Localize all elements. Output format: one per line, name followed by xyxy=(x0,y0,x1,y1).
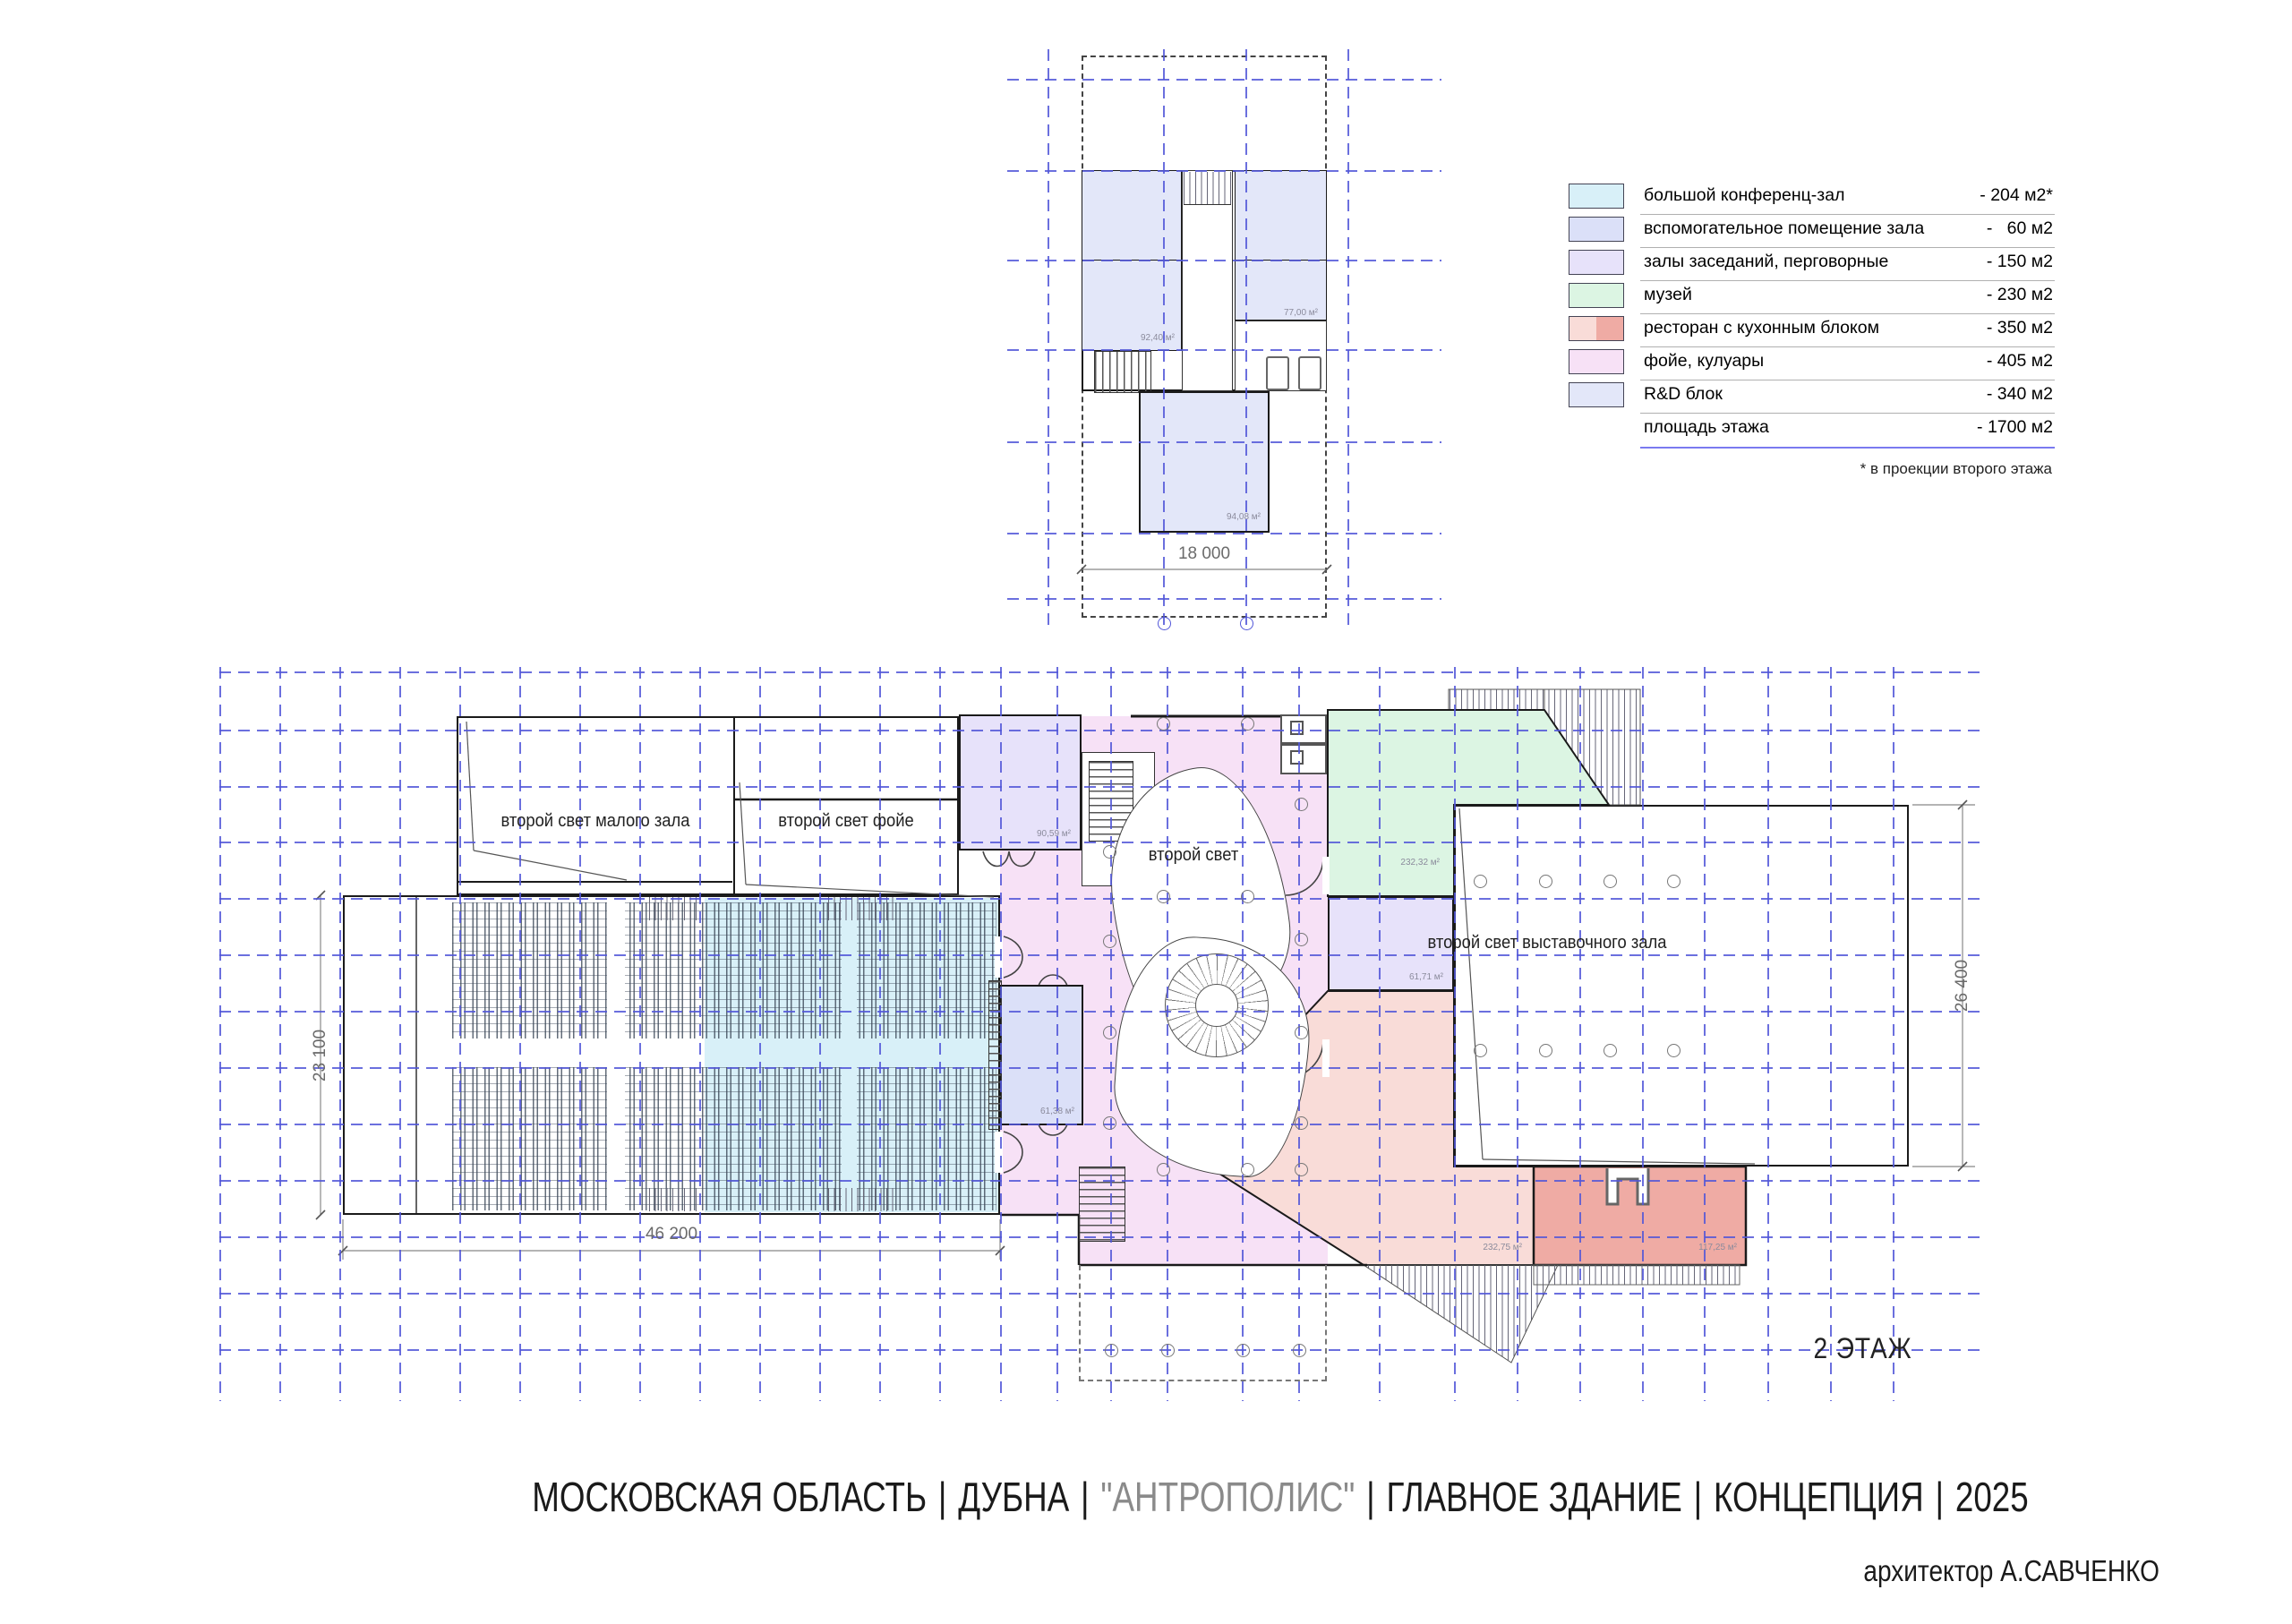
grid-line xyxy=(1007,533,1441,534)
grid-line xyxy=(219,671,1983,673)
column-marker xyxy=(1295,1026,1308,1039)
grid-line xyxy=(1007,349,1441,351)
grid-line xyxy=(1245,49,1247,627)
structural-grid xyxy=(0,0,2292,1624)
column-marker xyxy=(1474,1044,1487,1057)
grid-line xyxy=(879,667,881,1401)
grid-line xyxy=(1167,667,1168,1401)
column-marker xyxy=(1240,617,1253,630)
grid-line xyxy=(1007,79,1441,81)
grid-line xyxy=(219,898,1983,900)
grid-line xyxy=(219,1236,1983,1238)
grid-line xyxy=(219,1293,1983,1295)
exhibition-void-label: второй свет выставочного зала xyxy=(1382,933,1712,953)
column-marker xyxy=(1539,1044,1552,1057)
grid-line xyxy=(339,667,341,1401)
title-separator: | xyxy=(1081,1473,1090,1521)
column-marker xyxy=(1293,1344,1306,1357)
room-area-label: 232,75 м² xyxy=(1432,1243,1522,1252)
grid-line xyxy=(639,667,641,1401)
grid-line xyxy=(1007,441,1441,443)
grid-line xyxy=(219,667,221,1401)
grid-line xyxy=(399,667,401,1401)
dimension-label: 46 200 xyxy=(609,1225,734,1244)
title-building: ГЛАВНОЕ ЗДАНИЕ xyxy=(1387,1473,1682,1521)
room-area-label: 90,59 м² xyxy=(981,829,1071,839)
column-marker xyxy=(1157,717,1170,731)
grid-line xyxy=(519,667,521,1401)
small-hall-void-label: второй свет малого зала xyxy=(472,811,719,832)
grid-line xyxy=(1000,667,1002,1401)
column-marker xyxy=(1103,935,1116,948)
room-area-label: 77,00 м² xyxy=(1228,308,1318,318)
grid-line xyxy=(1893,667,1894,1401)
grid-line xyxy=(579,667,581,1401)
column-marker xyxy=(1241,717,1254,731)
title-separator: | xyxy=(938,1473,947,1521)
grid-line xyxy=(939,667,941,1401)
grid-line xyxy=(1242,667,1244,1401)
column-marker xyxy=(1241,890,1254,903)
dimension-label: 23 100 xyxy=(311,1002,330,1109)
architect-credit: архитектор А.САВЧЕНКО xyxy=(1863,1554,2159,1588)
grid-line xyxy=(219,1124,1983,1125)
grid-line xyxy=(1767,667,1769,1401)
grid-line xyxy=(1579,667,1581,1401)
column-marker xyxy=(1474,875,1487,888)
column-marker xyxy=(1236,1344,1250,1357)
column-marker xyxy=(1667,875,1681,888)
column-marker xyxy=(1295,798,1308,811)
grid-line xyxy=(219,954,1983,956)
column-marker xyxy=(1161,1344,1175,1357)
grid-line xyxy=(1704,667,1706,1401)
grid-line xyxy=(219,730,1983,731)
grid-line xyxy=(1056,667,1058,1401)
grid-line xyxy=(219,842,1983,843)
column-marker xyxy=(1667,1044,1681,1057)
title-separator: | xyxy=(1694,1473,1703,1521)
column-marker xyxy=(1604,1044,1617,1057)
grid-line xyxy=(219,1180,1983,1182)
grid-line xyxy=(279,667,281,1401)
grid-line xyxy=(1048,49,1049,627)
drawing-sheet: большой конференц-зал - 204 м2* вспомога… xyxy=(0,0,2292,1624)
column-marker xyxy=(1295,1163,1308,1176)
room-area-label: 61,71 м² xyxy=(1354,972,1443,982)
dimension-label: 18 000 xyxy=(1142,544,1267,564)
floor-label: 2 ЭТАЖ xyxy=(1814,1332,1912,1365)
room-area-label: 117,25 м² xyxy=(1647,1243,1737,1252)
dimension-label: 26 400 xyxy=(1953,932,1972,1039)
title-separator: | xyxy=(1366,1473,1375,1521)
column-marker xyxy=(1241,1163,1254,1176)
column-marker xyxy=(1157,890,1170,903)
title-year: 2025 xyxy=(1955,1473,2029,1521)
column-marker xyxy=(1539,875,1552,888)
grid-line xyxy=(1007,170,1441,172)
grid-line xyxy=(1007,598,1441,600)
title-project: "АНТРОПОЛИС" xyxy=(1100,1473,1355,1521)
atrium-void-label: второй свет xyxy=(1111,845,1276,866)
title-region: МОСКОВСКАЯ ОБЛАСТЬ xyxy=(532,1473,927,1521)
column-marker xyxy=(1103,1026,1116,1039)
grid-line xyxy=(1517,667,1518,1401)
grid-line xyxy=(759,667,761,1401)
column-marker xyxy=(1295,933,1308,946)
room-area-label: 232,32 м² xyxy=(1350,858,1440,868)
grid-line xyxy=(219,1349,1983,1351)
column-marker xyxy=(1604,875,1617,888)
foyer-void-label: второй свет фойе xyxy=(745,811,947,832)
grid-line xyxy=(1347,49,1349,627)
grid-line xyxy=(1642,667,1644,1401)
grid-line xyxy=(459,667,461,1401)
column-marker xyxy=(1295,1116,1308,1130)
grid-line xyxy=(1830,667,1832,1401)
title-stage: КОНЦЕПЦИЯ xyxy=(1714,1473,1924,1521)
column-marker xyxy=(1157,1163,1170,1176)
sheet-title: МОСКОВСКАЯ ОБЛАСТЬ | ДУБНА | "АНТРОПОЛИС… xyxy=(528,1473,2032,1521)
room-area-label: 92,40 м² xyxy=(1085,333,1175,343)
grid-line xyxy=(819,667,821,1401)
grid-line xyxy=(699,667,701,1401)
title-city: ДУБНА xyxy=(958,1473,1069,1521)
grid-line xyxy=(1379,667,1381,1401)
room-area-label: 94,08 м² xyxy=(1171,512,1261,522)
grid-line xyxy=(1454,667,1456,1401)
grid-line xyxy=(219,786,1983,788)
column-marker xyxy=(1105,1344,1118,1357)
title-separator: | xyxy=(1936,1473,1945,1521)
grid-line xyxy=(219,1011,1983,1013)
column-marker xyxy=(1103,1116,1116,1130)
column-marker xyxy=(1158,617,1171,630)
room-area-label: 61,38 м² xyxy=(985,1107,1074,1116)
grid-line xyxy=(219,1067,1983,1069)
grid-line xyxy=(1007,260,1441,261)
